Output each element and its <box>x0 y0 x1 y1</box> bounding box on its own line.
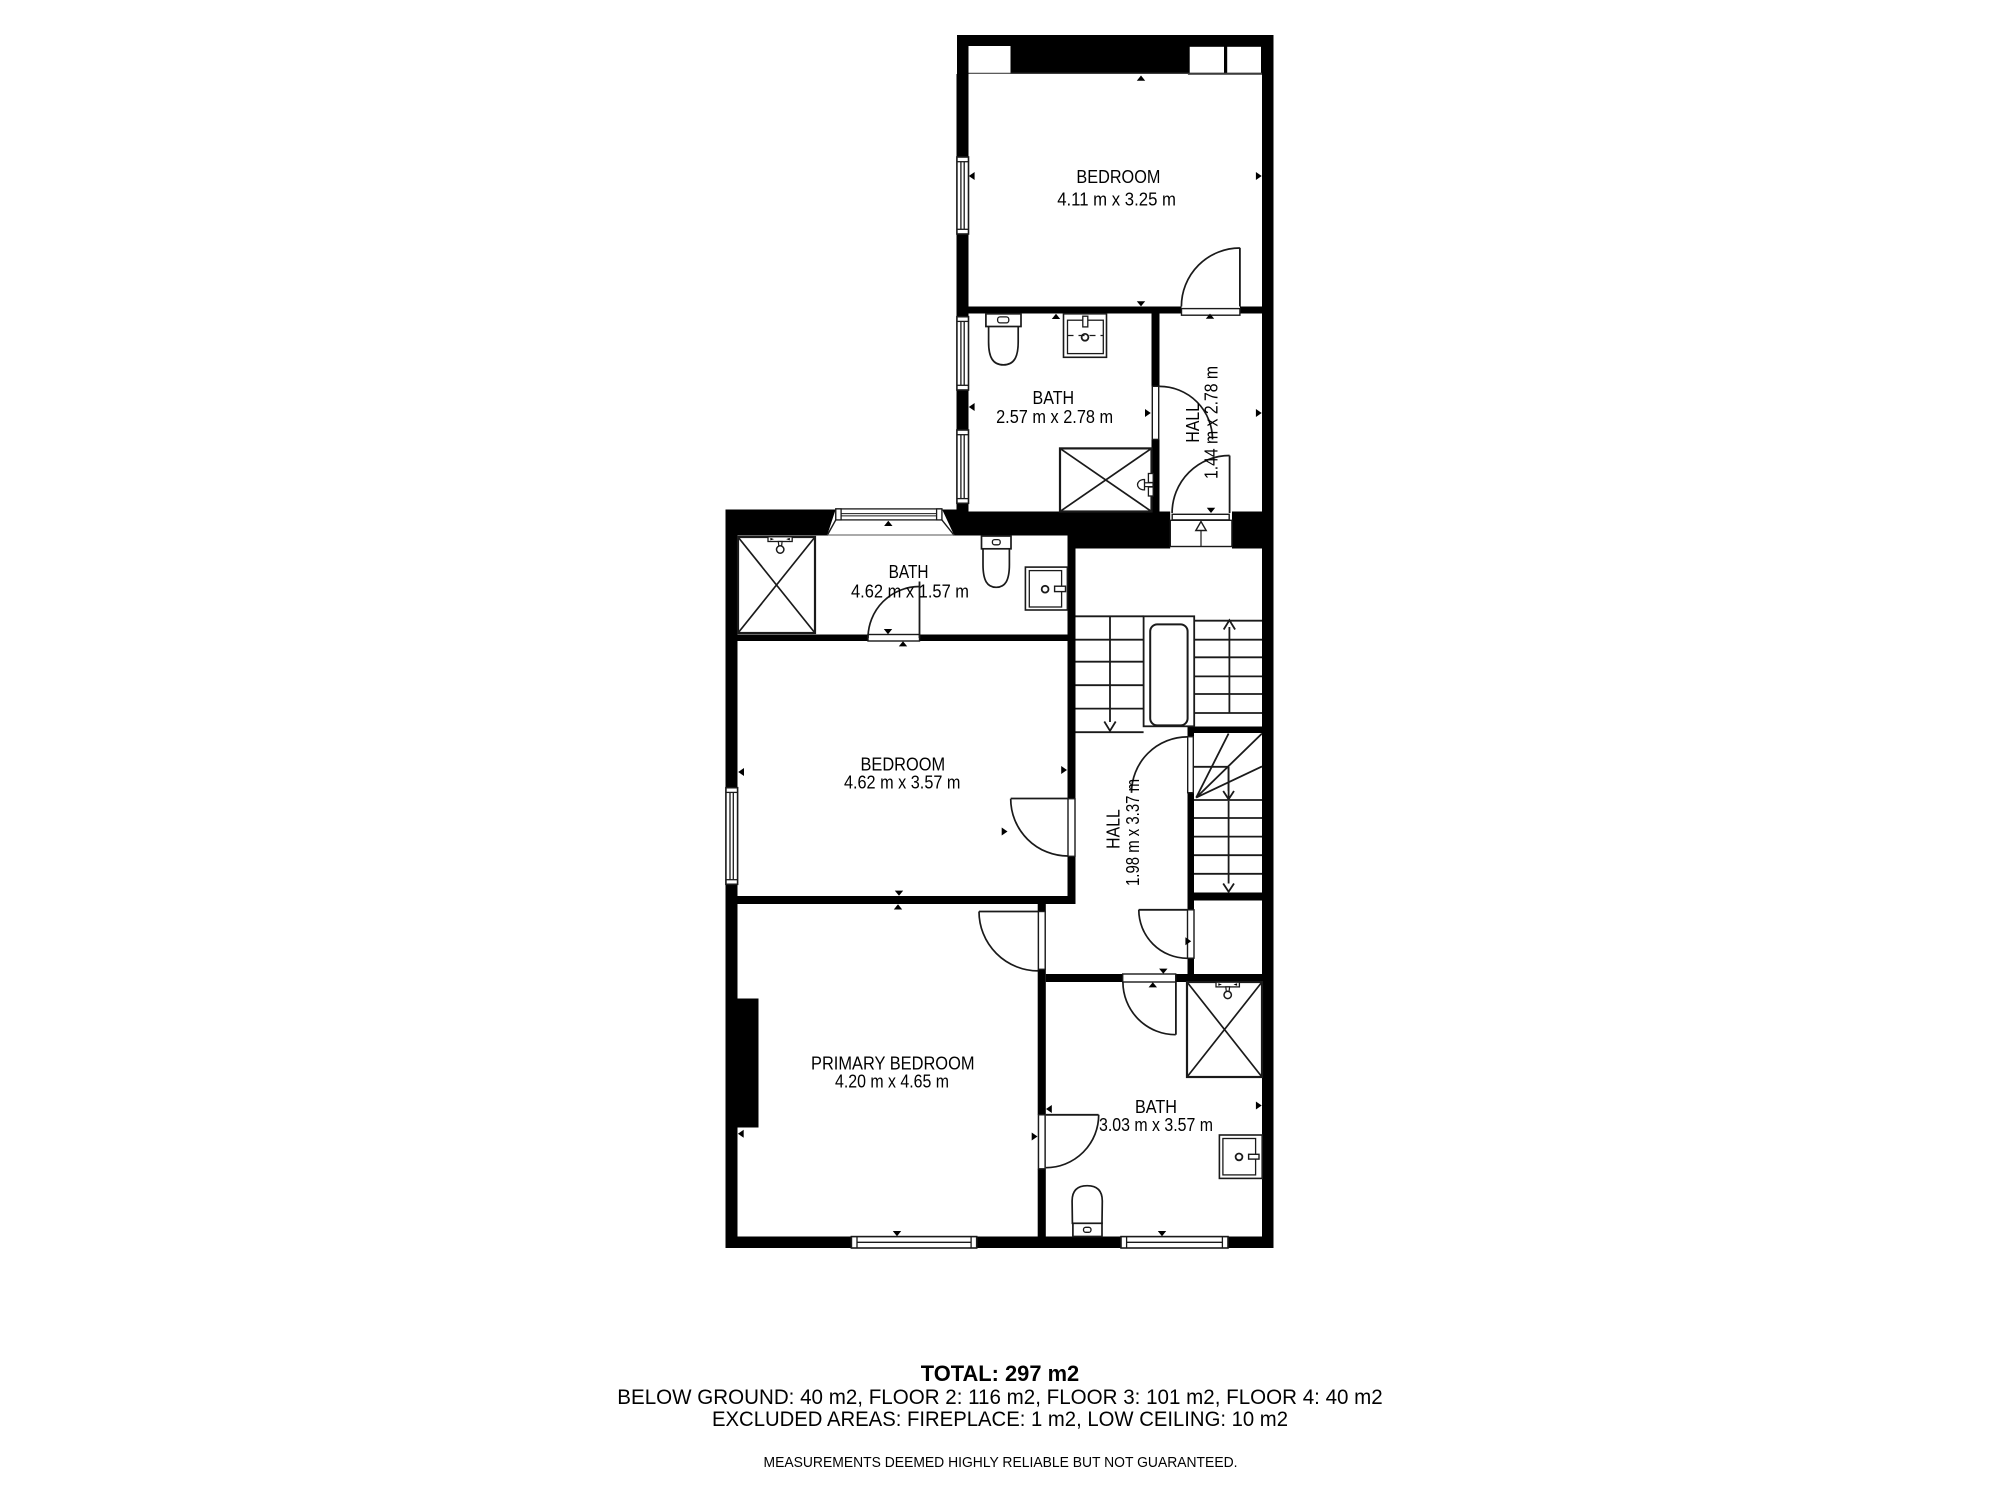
svg-text:TOTAL: 297 m2: TOTAL: 297 m2 <box>921 1361 1079 1386</box>
svg-text:2.57 m x 2.78 m: 2.57 m x 2.78 m <box>996 407 1113 427</box>
svg-text:BEDROOM: BEDROOM <box>1076 167 1160 187</box>
svg-text:BATH: BATH <box>1135 1097 1177 1117</box>
svg-text:EXCLUDED AREAS: FIREPLACE: 1 m: EXCLUDED AREAS: FIREPLACE: 1 m2, LOW CEI… <box>712 1408 1288 1431</box>
svg-text:4.62 m x 1.57 m: 4.62 m x 1.57 m <box>851 582 969 602</box>
svg-text:4.62 m x 3.57 m: 4.62 m x 3.57 m <box>844 772 961 792</box>
svg-text:MEASUREMENTS DEEMED HIGHLY REL: MEASUREMENTS DEEMED HIGHLY RELIABLE BUT … <box>764 1455 1238 1471</box>
svg-text:BATH: BATH <box>889 562 929 582</box>
svg-text:PRIMARY BEDROOM: PRIMARY BEDROOM <box>811 1054 975 1074</box>
svg-text:BELOW GROUND: 40 m2, FLOOR 2:: BELOW GROUND: 40 m2, FLOOR 2: 116 m2, FL… <box>617 1386 1383 1409</box>
svg-text:4.20 m x 4.65 m: 4.20 m x 4.65 m <box>835 1072 949 1092</box>
svg-text:HALL: HALL <box>1104 809 1124 849</box>
svg-text:4.11 m x 3.25 m: 4.11 m x 3.25 m <box>1057 190 1176 210</box>
svg-text:1.44 m x 2.78 m: 1.44 m x 2.78 m <box>1202 366 1222 479</box>
svg-text:HALL: HALL <box>1183 403 1203 443</box>
svg-text:BATH: BATH <box>1033 388 1075 408</box>
svg-text:1.98 m x 3.37 m: 1.98 m x 3.37 m <box>1123 779 1143 886</box>
svg-text:3.03 m x 3.57 m: 3.03 m x 3.57 m <box>1099 1115 1213 1135</box>
